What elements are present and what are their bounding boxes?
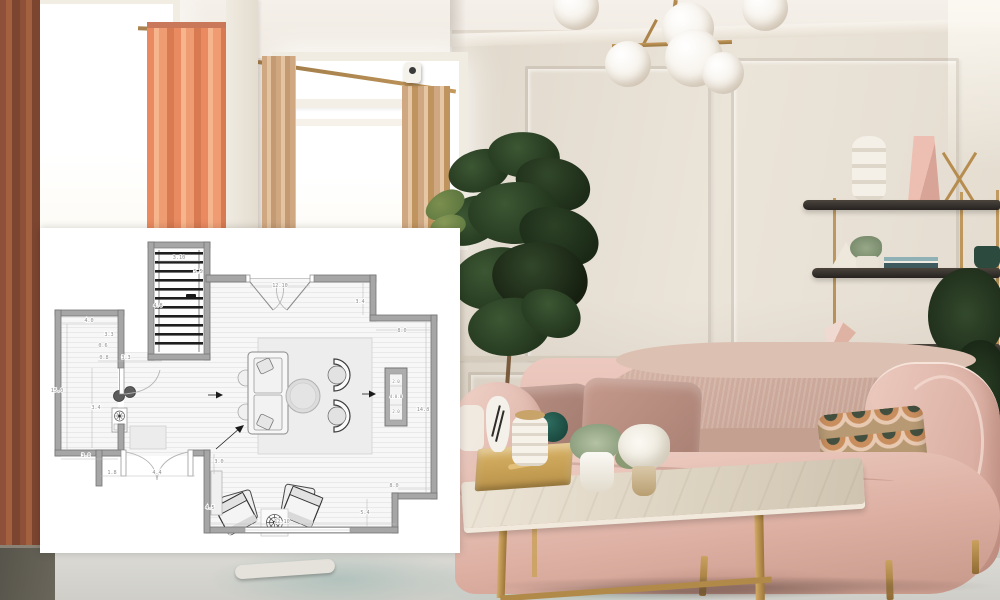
dim-lower-left-wall: 3.0 (214, 459, 223, 465)
plan-bench (130, 426, 166, 449)
dim-stairs-width: 3.10 (173, 255, 186, 261)
dim-top-right-width: 8.0 (397, 328, 406, 334)
dim-closet-upper-right: 3.3 (104, 332, 113, 338)
dim-closet-mid: 3.4 (91, 405, 100, 411)
dim-top-door-width: 12.10 (272, 283, 288, 289)
dim-stairs-side: 5.5 (193, 269, 202, 275)
plan-stool (125, 387, 136, 398)
ring-vase (852, 136, 886, 202)
side-chair (458, 405, 484, 451)
screenshot: 3.10 5.5 4.8 4.0 3.3 0.6 0.8 3.3 15.0 3.… (0, 0, 1000, 600)
black-white-vase (486, 396, 510, 452)
sofa-leg (972, 540, 979, 574)
plan-round-table (290, 383, 316, 409)
dim-closet-width-bottom: 3.0 (81, 453, 90, 459)
dim-top-right-step: 3.4 (355, 299, 364, 305)
table-leg (532, 515, 537, 577)
dim-closet-small: 0.6 (98, 343, 107, 349)
table-leg (754, 505, 765, 600)
chandelier-globe (702, 52, 744, 94)
dim-closet-height: 15.0 (51, 388, 64, 394)
green-pot (974, 246, 1000, 269)
dim-console-top: 2.0 (392, 379, 400, 384)
dim-closet-door-width: 3.3 (121, 355, 130, 361)
dim-closet-width-top: 4.0 (84, 318, 93, 324)
shelf (803, 200, 1000, 210)
security-camera (404, 62, 421, 83)
dim-lower-door-width: 4.4 (152, 470, 161, 476)
rust-curtain (0, 0, 40, 562)
dim-lower-console: 4.5 (205, 505, 214, 511)
dim-right-height: 14.8 (417, 407, 430, 413)
chandelier-globe (605, 41, 651, 87)
flower-vase (632, 466, 656, 496)
dim-bottom-right-step: 5.4 (360, 510, 369, 516)
dim-stairs-left: 4.8 (153, 303, 162, 309)
floor-plan-overlay: 3.10 5.5 4.8 4.0 3.3 0.6 0.8 3.3 15.0 3.… (40, 228, 460, 553)
white-flowers (618, 424, 670, 470)
dim-bottom-right-width: 8.0 (389, 483, 398, 489)
dim-console-mid: 4.0.0 (390, 394, 403, 399)
dim-closet-door-offset: 0.8 (99, 355, 108, 361)
dim-console-bottom: 2.0 (392, 409, 400, 414)
dim-lower-door-offset: 1.8 (107, 470, 116, 476)
dim-bottom-window-width: 12.10 (274, 519, 290, 525)
floor-plan-svg: 3.10 5.5 4.8 4.0 3.3 0.6 0.8 3.3 15.0 3.… (40, 228, 460, 553)
ribbed-canister (512, 416, 548, 466)
white-pot (580, 452, 614, 492)
